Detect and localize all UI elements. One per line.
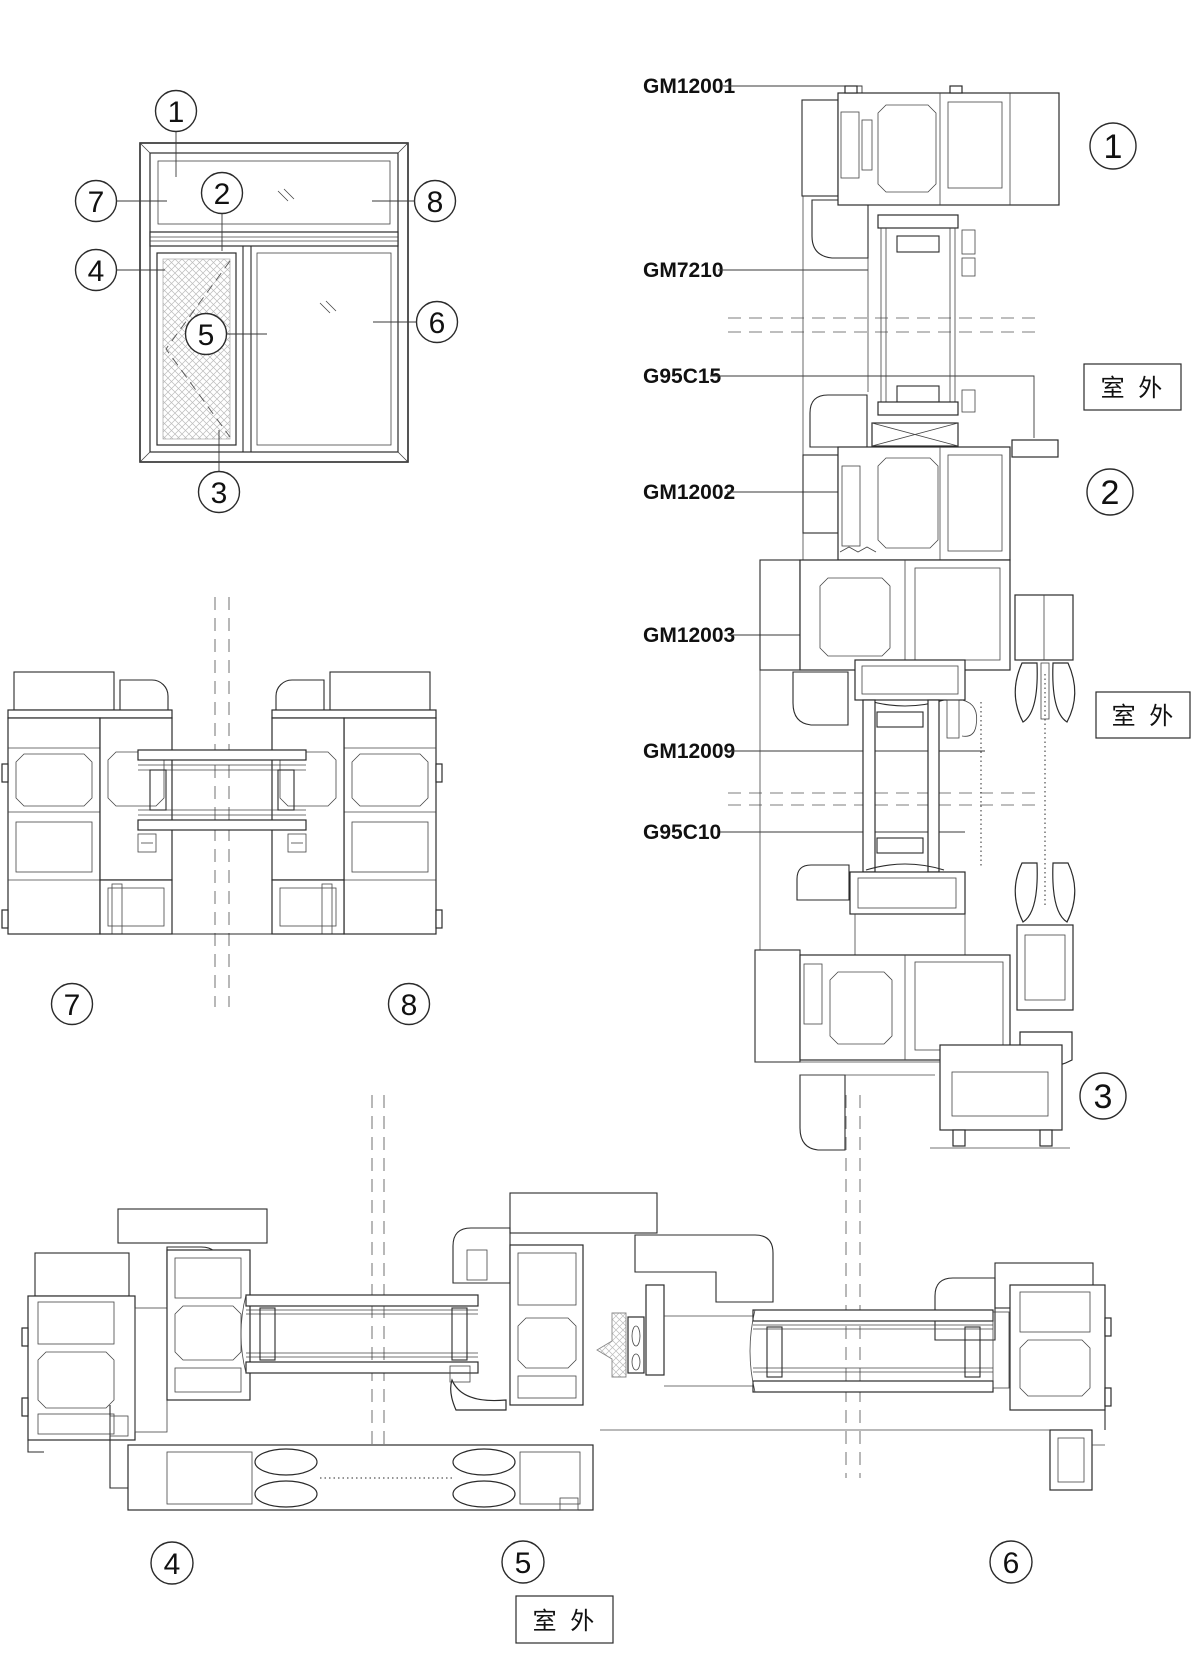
mullion-profile xyxy=(510,1245,753,1405)
part-label-g95c10: G95C10 xyxy=(643,821,721,844)
jamb-profile-right xyxy=(272,672,442,934)
thermal-break-gasket xyxy=(597,1313,626,1377)
callout-5: 5 xyxy=(198,319,215,352)
callout-7: 7 xyxy=(88,186,105,219)
break-lines xyxy=(372,1095,860,1478)
callout-8-section: 8 xyxy=(401,989,418,1022)
callout-4-section: 4 xyxy=(164,1548,181,1581)
head-frame-profile xyxy=(838,86,1059,205)
svg-text:室 外: 室 外 xyxy=(1112,702,1177,730)
screen-track-profiles xyxy=(1015,663,1075,1067)
section-detail-7-8: 7 8 xyxy=(2,597,442,1025)
callout-3-section: 3 xyxy=(1094,1078,1113,1116)
glass-spacer xyxy=(877,712,923,727)
part-label-gm12001: GM12001 xyxy=(643,75,736,98)
sash-profile xyxy=(850,660,981,914)
horizontal-section-4-5-6: 4 5 6 室 外 xyxy=(22,1095,1111,1643)
svg-text:室 外: 室 外 xyxy=(1101,374,1166,402)
glass-spacer xyxy=(260,1308,275,1360)
part-label-gm12002: GM12002 xyxy=(643,481,735,504)
outdoor-label-box: 室 外 xyxy=(1084,364,1181,410)
frame-profile-gm12003 xyxy=(800,560,1073,670)
callout-5-section: 5 xyxy=(515,1547,532,1580)
cad-drawing: 1 2 7 8 4 5 6 3 xyxy=(0,0,1200,1680)
callout-3: 3 xyxy=(211,477,228,510)
casement-glazing-unit xyxy=(241,1295,478,1373)
window-elevation: 1 2 7 8 4 5 6 3 xyxy=(76,91,458,513)
glass-spacer xyxy=(897,386,939,402)
vertical-section-1-2-3: GM12001 GM7210 G95C15 GM12002 GM12003 GM… xyxy=(643,75,1190,1150)
callout-1-section: 1 xyxy=(1104,128,1123,166)
transom-bar xyxy=(150,232,398,246)
part-label-gm12009: GM12009 xyxy=(643,740,735,763)
glass-spacer xyxy=(877,838,923,853)
exterior-glazing-bead xyxy=(1012,440,1058,457)
svg-text:室 外: 室 外 xyxy=(533,1607,598,1635)
callout-4: 4 xyxy=(88,255,105,288)
callout-2-section: 2 xyxy=(1101,474,1120,512)
outdoor-label-box: 室 外 xyxy=(1096,692,1190,738)
drawing-sheet: 1 2 7 8 4 5 6 3 xyxy=(0,0,1200,1680)
glass-spacer xyxy=(897,236,939,252)
glass-spacer xyxy=(452,1308,467,1360)
callout-1: 1 xyxy=(168,96,185,129)
callout-6: 6 xyxy=(429,307,446,340)
jamb-profile-left xyxy=(2,672,172,934)
glass-spacer xyxy=(767,1327,782,1377)
outdoor-label-box: 室 外 xyxy=(516,1596,613,1643)
callout-7-section: 7 xyxy=(64,989,81,1022)
glass-spacer xyxy=(965,1327,980,1377)
callout-2: 2 xyxy=(214,178,231,211)
transom-profile xyxy=(838,440,1058,560)
part-label-gm12003: GM12003 xyxy=(643,624,735,647)
upper-glazing-unit xyxy=(872,215,975,446)
fixed-glazing-unit xyxy=(750,1310,993,1392)
break-lines xyxy=(215,597,229,1007)
callout-8: 8 xyxy=(427,186,444,219)
casement-stile-profile xyxy=(167,1250,487,1400)
callout-6-section: 6 xyxy=(1003,1547,1020,1580)
part-label-g95c15: G95C15 xyxy=(643,365,722,388)
part-label-gm7210: GM7210 xyxy=(643,259,724,282)
left-jamb-profile xyxy=(22,1296,167,1452)
